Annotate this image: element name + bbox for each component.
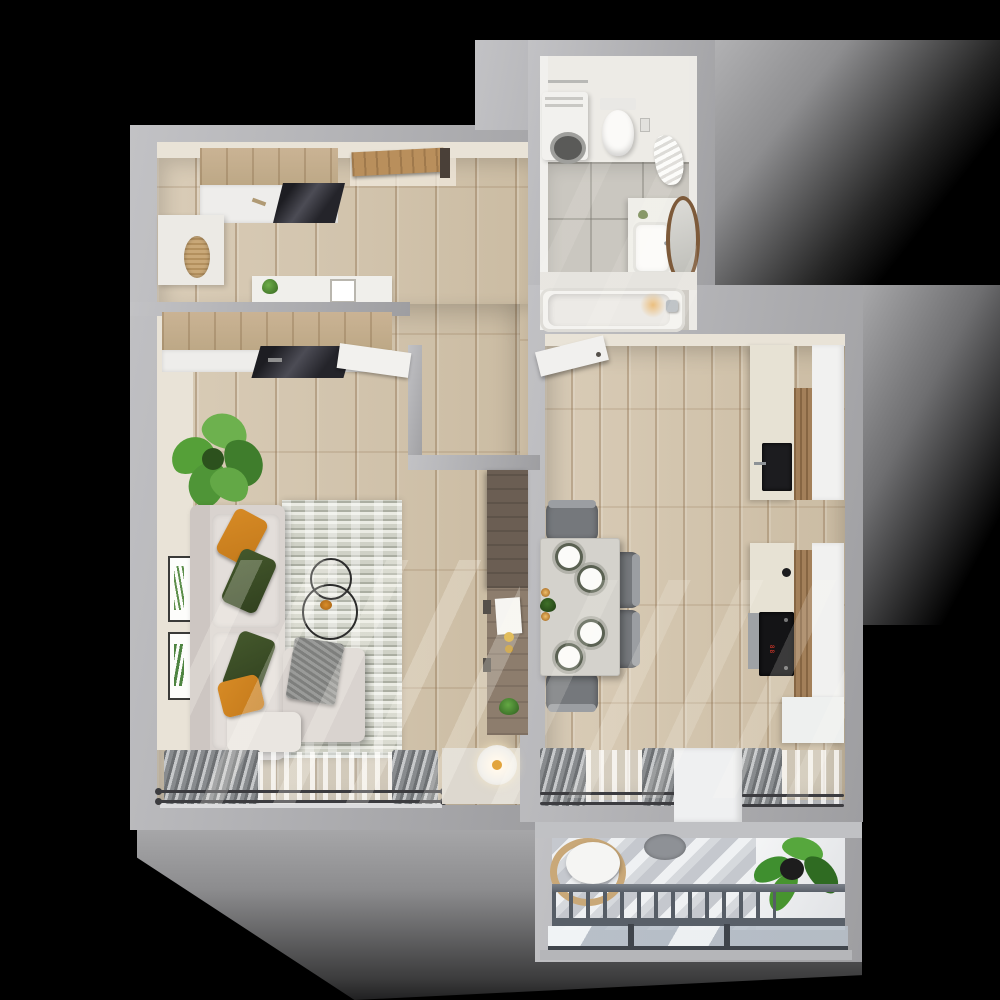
towel-rack xyxy=(548,80,588,83)
sofa-ottoman xyxy=(227,712,301,752)
soap-plant xyxy=(638,210,648,219)
cooktop-display: 88 xyxy=(768,645,775,654)
desk-chair-tab-2 xyxy=(483,658,491,672)
chair-r1-back xyxy=(632,554,640,606)
living-curtain-rod-2 xyxy=(158,800,444,803)
living-curtain-left xyxy=(164,750,260,804)
white-cabinet-bottom xyxy=(782,697,844,743)
candle-2 xyxy=(541,612,550,621)
plate-4 xyxy=(558,646,580,668)
balcony-door-pier xyxy=(674,748,742,822)
living-curtain-sheer xyxy=(258,752,394,802)
balcony-outer-sill xyxy=(540,950,852,960)
desk-chair-tab-1 xyxy=(483,600,491,614)
rod-cap-1 xyxy=(155,788,162,795)
living-door-handle xyxy=(268,358,282,362)
oven-front-edge xyxy=(748,613,759,669)
desk-shelf-upper xyxy=(487,470,528,588)
console-frame xyxy=(330,279,356,303)
tub-faucet xyxy=(666,300,678,312)
plate-2 xyxy=(580,568,602,590)
desk-plant xyxy=(499,698,519,715)
cooktop-knob-1 xyxy=(784,618,788,622)
kitchen-curtain-r1 xyxy=(742,748,782,806)
cabinet-wood-panel-1 xyxy=(794,388,812,500)
chair-r2-back xyxy=(632,612,640,666)
plate-1 xyxy=(558,546,580,568)
table-decor xyxy=(320,600,332,610)
round-mirror xyxy=(666,196,700,284)
bath-warm-light xyxy=(640,292,666,318)
entry-door-frame xyxy=(440,148,450,178)
cabinet-wood-panel-2 xyxy=(794,550,812,703)
sink-faucet xyxy=(754,462,766,465)
living-curtain-rod-1 xyxy=(158,790,444,793)
counter-faucet-dot xyxy=(782,568,791,577)
chair-top-back xyxy=(548,500,596,508)
white-counter-top-1 xyxy=(812,345,844,500)
balcony-glass-panels xyxy=(548,926,848,948)
toilet-flush-plate xyxy=(640,118,650,132)
kitchen-rod-r1 xyxy=(742,794,844,797)
kitchen-rod-l1 xyxy=(540,792,678,795)
corridor-nook-wall-v xyxy=(408,345,422,470)
washing-machine xyxy=(542,92,588,160)
kitchen-curtain-sheer-l xyxy=(586,750,642,804)
wall-art-frame-2 xyxy=(168,632,192,700)
entry-door xyxy=(351,148,444,177)
kitchen-sink xyxy=(762,443,792,491)
sofa-backrest xyxy=(190,505,210,760)
apartment-floorplan-render: 88 xyxy=(0,0,1000,1000)
hall-rattan-seat xyxy=(184,236,210,278)
kitchen-rod-r2 xyxy=(742,804,844,807)
balcony-chair-cushion xyxy=(566,842,620,884)
shadow-wedge-top-right xyxy=(712,40,1000,290)
cooktop: 88 xyxy=(759,612,794,676)
dining-chair-top xyxy=(546,502,598,542)
balcony-round-table xyxy=(644,834,686,860)
desk-cup-2 xyxy=(505,645,513,653)
desk-cup xyxy=(504,632,514,642)
living-wardrobe-top xyxy=(162,312,392,350)
toilet-cistern xyxy=(600,98,636,110)
plate-3 xyxy=(580,622,602,644)
throw-blanket xyxy=(285,636,344,705)
centerpiece-plant xyxy=(540,598,556,612)
washer-drum xyxy=(550,132,586,164)
counter-lower xyxy=(750,543,794,613)
floor-lamp-bulb xyxy=(492,760,502,770)
console-plant xyxy=(262,279,278,294)
living-curtain-right xyxy=(392,750,438,804)
desk-papers xyxy=(495,597,522,635)
balcony-balusters xyxy=(552,892,776,920)
rod-cap-3 xyxy=(155,798,162,805)
monstera-plant xyxy=(162,410,270,514)
hall-wardrobe-mirror-door xyxy=(273,183,345,223)
candle-1 xyxy=(541,588,550,597)
chair-bottom-back xyxy=(548,704,596,712)
plant-pot xyxy=(780,858,804,880)
balcony-railing-bottom xyxy=(552,918,845,926)
wall-art-frame-1 xyxy=(168,556,192,622)
kitchen-rod-l2 xyxy=(540,802,678,805)
shadow-wedge-right xyxy=(863,285,1000,625)
cooktop-knob-2 xyxy=(784,666,788,670)
coffee-table-large xyxy=(302,584,358,640)
kitchen-curtain-l1 xyxy=(540,748,586,806)
hall-wardrobe-top xyxy=(200,148,338,185)
toilet-bowl xyxy=(602,110,634,156)
balcony-railing-top xyxy=(552,884,845,892)
kitchen-curtain-l2 xyxy=(642,748,674,806)
corridor-nook-wall-h xyxy=(408,455,540,470)
white-counter-top-2 xyxy=(812,543,844,700)
kitchen-door-handle xyxy=(596,352,601,357)
